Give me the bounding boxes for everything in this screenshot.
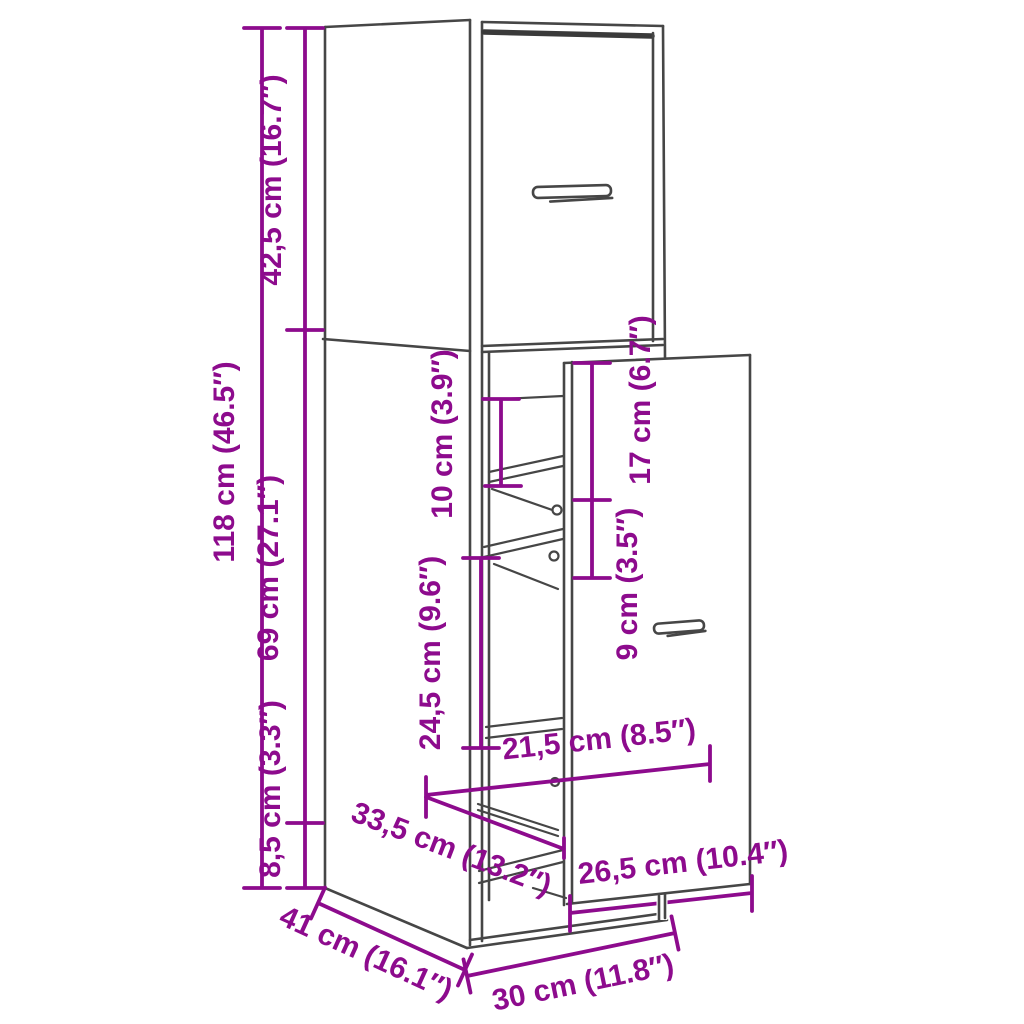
- dimension-line: [287, 28, 323, 888]
- dimension-line: [463, 558, 499, 748]
- product-dimension-image: 118 cm (46.5″) 42,5 cm (16.7″) 69 cm (27…: [0, 0, 1024, 1024]
- dimension-label: 42,5 cm (16.7″): [255, 74, 288, 285]
- upper-drawer-handle: [533, 185, 612, 202]
- dimension-label: 33,5 cm (13.2″): [347, 796, 556, 902]
- dimension-label: 9 cm (3.5″): [611, 508, 644, 661]
- dimension-inner-middle: 24,5 cm (9.6″): [414, 556, 499, 750]
- handle-bar: [533, 185, 611, 198]
- dimension-label: 30 cm (11.8″): [489, 948, 676, 1018]
- dimension-line: [574, 363, 610, 578]
- front-right-outer-edge: [663, 26, 665, 358]
- runner-line: [494, 564, 558, 589]
- shelf-line: [486, 718, 562, 727]
- top-gap-band: [484, 32, 652, 36]
- shelf-line: [484, 529, 563, 547]
- dimension-annotations: 118 cm (46.5″) 42,5 cm (16.7″) 69 cm (27…: [208, 28, 790, 1018]
- front-bottom-outer: [467, 920, 667, 948]
- pullout-handle: [654, 620, 706, 637]
- dimension-label: 24,5 cm (9.6″): [414, 556, 447, 750]
- shelf-pin-hole: [553, 506, 562, 515]
- side-panel-top-edge: [325, 20, 470, 27]
- carcass-edge-overlap-patch: [657, 894, 668, 920]
- dimension-inner-depth: 33,5 cm (13.2″): [347, 796, 564, 902]
- side-panel-seam: [323, 339, 470, 351]
- dimension-front-panel-width: 26,5 cm (10.4″): [570, 834, 790, 931]
- dimension-label: 69 cm (27.1″): [252, 475, 285, 661]
- dimension-inner-column: 17 cm (6.7″) 9 cm (3.5″): [574, 315, 657, 660]
- shelf-pin-hole: [550, 552, 559, 561]
- dimension-label: 26,5 cm (10.4″): [576, 834, 790, 891]
- diagram-svg: 118 cm (46.5″) 42,5 cm (16.7″) 69 cm (27…: [0, 0, 1024, 1024]
- front-top-edge: [482, 22, 663, 26]
- dimension-label: 17 cm (6.7″): [624, 315, 657, 484]
- front-bottom-inner: [470, 913, 665, 940]
- dimension-inner-width: 21,5 cm (8.5″): [426, 713, 710, 817]
- dimension-label: 10 cm (3.9″): [426, 349, 459, 518]
- runner-line: [492, 489, 558, 512]
- dimension-cabinet-depth: 41 cm (16.1″): [274, 888, 472, 1007]
- dimension-label: 8,5 cm (3.3″): [254, 700, 287, 878]
- dimension-label: 118 cm (46.5″): [208, 361, 241, 562]
